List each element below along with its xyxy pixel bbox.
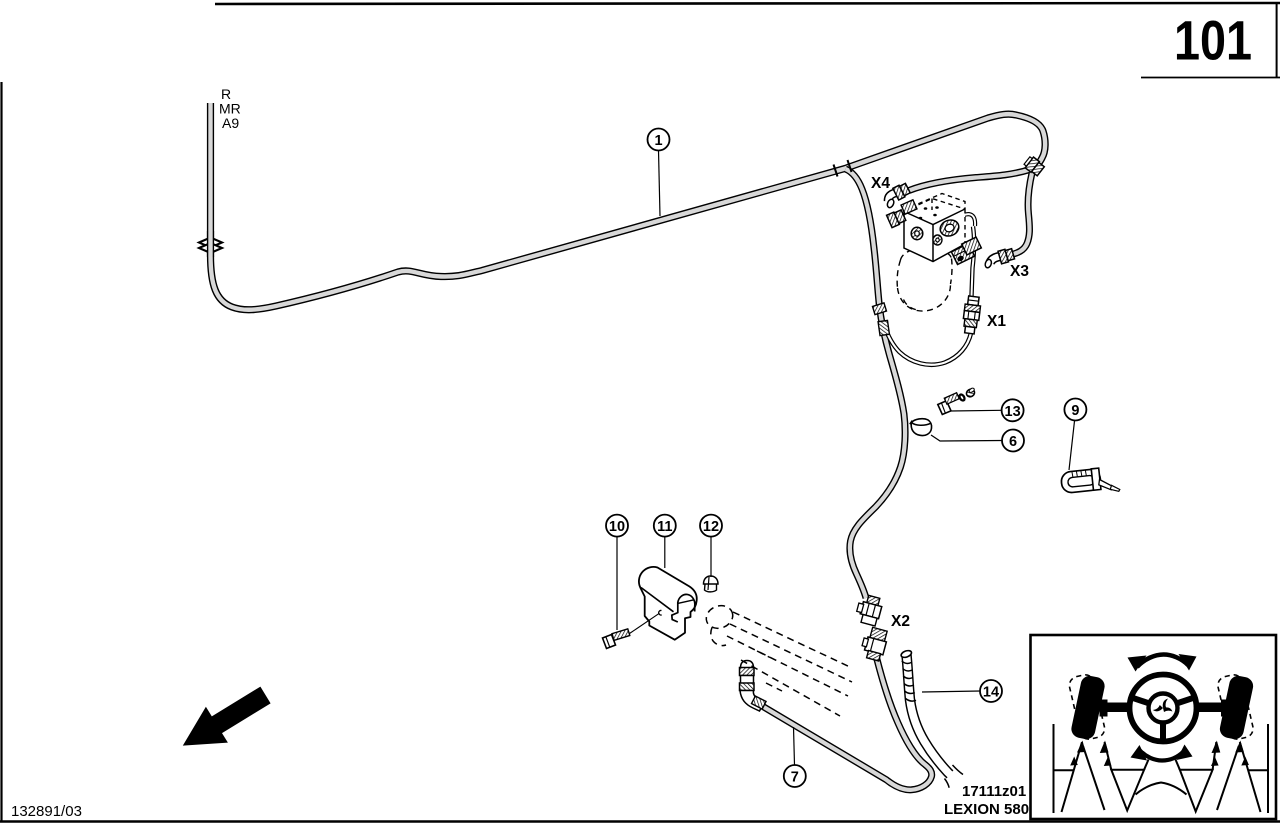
svg-text:9: 9 <box>1071 403 1079 419</box>
svg-text:10: 10 <box>609 519 625 535</box>
svg-text:X1: X1 <box>987 313 1006 330</box>
svg-text:132891/03: 132891/03 <box>11 803 82 820</box>
svg-text:1: 1 <box>654 133 662 149</box>
svg-text:X4: X4 <box>871 175 890 192</box>
svg-text:X2: X2 <box>891 613 910 630</box>
svg-text:7: 7 <box>791 770 799 786</box>
svg-text:17111z01: 17111z01 <box>962 783 1026 800</box>
svg-text:A9: A9 <box>222 115 239 131</box>
svg-text:12: 12 <box>703 519 719 535</box>
svg-text:14: 14 <box>983 685 999 701</box>
svg-text:13: 13 <box>1005 404 1021 420</box>
svg-text:6: 6 <box>1009 434 1017 450</box>
svg-text:11: 11 <box>657 519 672 535</box>
svg-text:LEXION 580: LEXION 580 <box>944 801 1029 818</box>
svg-text:X3: X3 <box>1010 263 1029 280</box>
svg-text:101: 101 <box>1174 10 1252 72</box>
